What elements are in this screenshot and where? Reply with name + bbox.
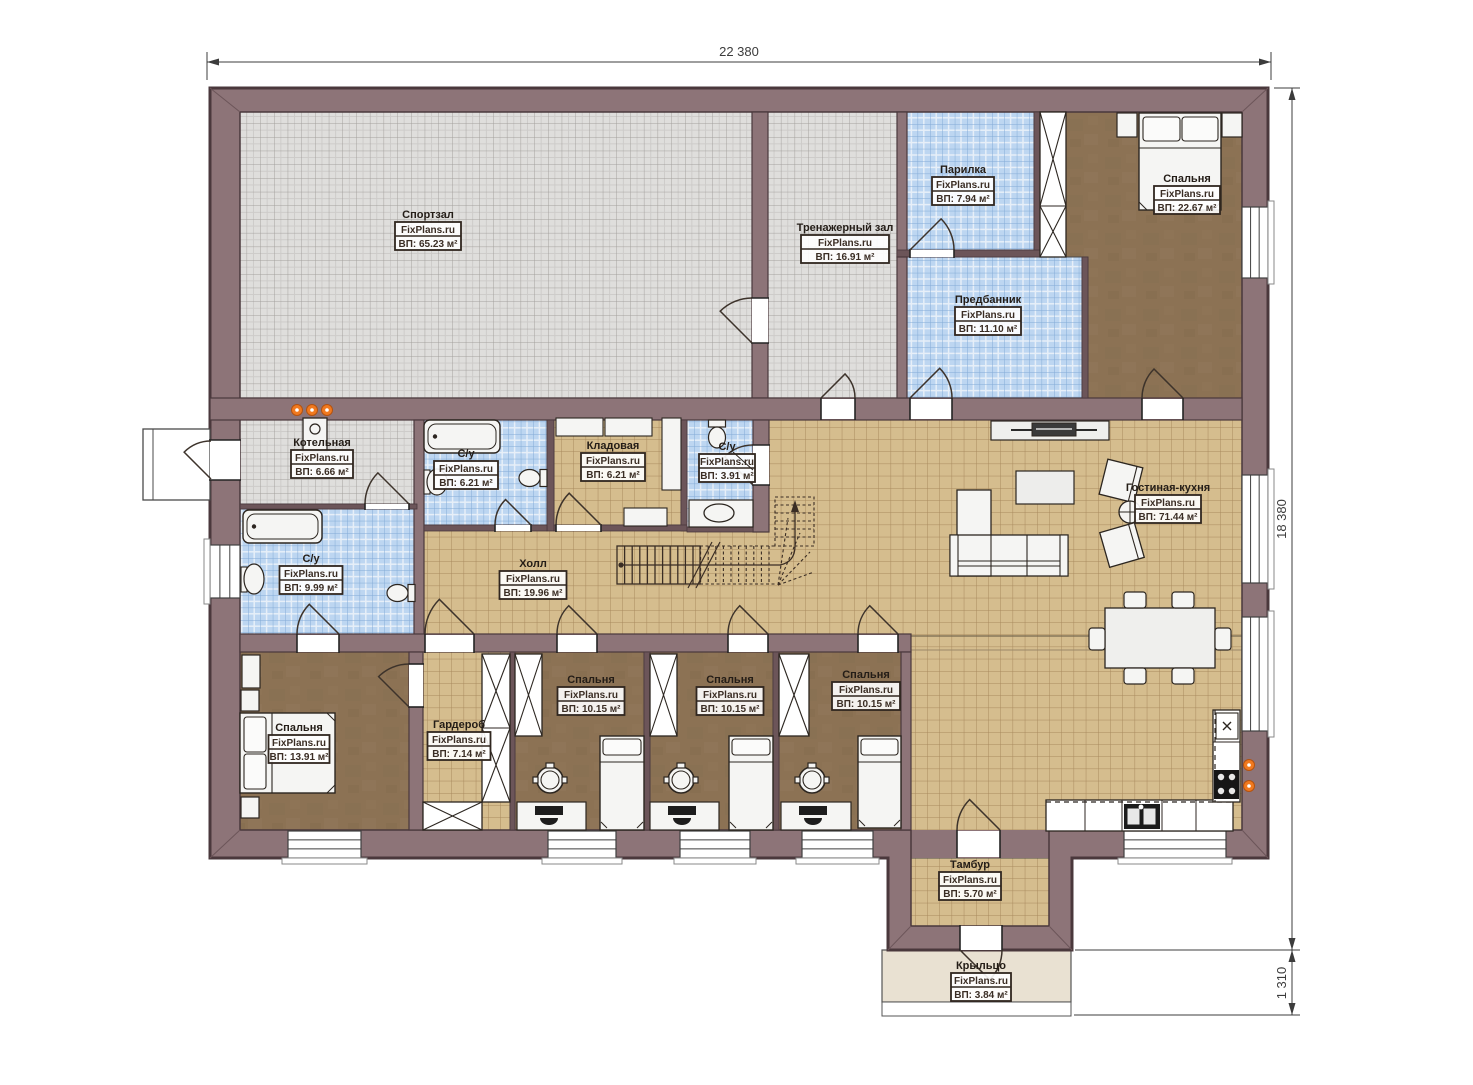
svg-text:1 310: 1 310 (1274, 967, 1289, 1000)
svg-text:FixPlans.ru: FixPlans.ru (961, 310, 1015, 321)
svg-text:Спальня: Спальня (842, 669, 890, 681)
svg-text:Крыльцо: Крыльцо (956, 960, 1006, 972)
svg-text:FixPlans.ru: FixPlans.ru (954, 976, 1008, 987)
svg-text:FixPlans.ru: FixPlans.ru (936, 180, 990, 191)
svg-text:Гардероб: Гардероб (433, 719, 485, 731)
svg-text:ВП: 3.84 м²: ВП: 3.84 м² (954, 990, 1008, 1001)
svg-text:ВП: 9.99 м²: ВП: 9.99 м² (284, 583, 338, 594)
svg-text:Спальня: Спальня (275, 722, 323, 734)
svg-text:FixPlans.ru: FixPlans.ru (506, 574, 560, 585)
svg-text:FixPlans.ru: FixPlans.ru (401, 225, 455, 236)
svg-text:Парилка: Парилка (940, 164, 987, 176)
svg-text:FixPlans.ru: FixPlans.ru (432, 735, 486, 746)
svg-text:FixPlans.ru: FixPlans.ru (272, 738, 326, 749)
svg-text:Гостиная-кухня: Гостиная-кухня (1126, 482, 1210, 494)
svg-text:Спальня: Спальня (567, 674, 615, 686)
svg-text:Предбанник: Предбанник (955, 294, 1022, 306)
svg-text:Котельная: Котельная (293, 437, 351, 449)
svg-text:ВП: 6.21 м²: ВП: 6.21 м² (439, 478, 493, 489)
svg-text:ВП: 7.94 м²: ВП: 7.94 м² (936, 194, 990, 205)
svg-text:ВП: 13.91 м²: ВП: 13.91 м² (269, 752, 329, 763)
svg-text:ВП: 7.14 м²: ВП: 7.14 м² (432, 749, 486, 760)
svg-text:FixPlans.ru: FixPlans.ru (700, 457, 754, 468)
svg-text:FixPlans.ru: FixPlans.ru (818, 238, 872, 249)
svg-text:FixPlans.ru: FixPlans.ru (439, 464, 493, 475)
svg-text:18 380: 18 380 (1274, 499, 1289, 539)
svg-text:ВП: 11.10 м²: ВП: 11.10 м² (959, 324, 1018, 335)
svg-text:Спортзал: Спортзал (402, 209, 454, 221)
svg-text:С/у: С/у (302, 553, 320, 565)
svg-text:ВП: 6.21 м²: ВП: 6.21 м² (586, 470, 640, 481)
svg-text:ВП: 19.96 м²: ВП: 19.96 м² (503, 588, 563, 599)
svg-text:ВП: 6.66 м²: ВП: 6.66 м² (295, 467, 349, 478)
svg-text:FixPlans.ru: FixPlans.ru (564, 690, 618, 701)
svg-text:ВП: 3.91 м²: ВП: 3.91 м² (700, 471, 754, 482)
svg-text:Спальня: Спальня (1163, 173, 1211, 185)
svg-text:FixPlans.ru: FixPlans.ru (586, 456, 640, 467)
svg-text:22 380: 22 380 (719, 44, 759, 59)
svg-text:ВП: 5.70 м²: ВП: 5.70 м² (943, 889, 997, 900)
svg-text:Тренажерный зал: Тренажерный зал (797, 222, 894, 234)
svg-text:ВП: 10.15 м²: ВП: 10.15 м² (836, 699, 896, 710)
svg-text:ВП: 16.91 м²: ВП: 16.91 м² (815, 252, 875, 263)
svg-text:С/у: С/у (718, 441, 736, 453)
svg-text:Тамбур: Тамбур (950, 859, 990, 871)
svg-text:FixPlans.ru: FixPlans.ru (295, 453, 349, 464)
svg-text:С/у: С/у (457, 448, 475, 460)
svg-text:Холл: Холл (519, 558, 547, 570)
svg-text:ВП: 10.15 м²: ВП: 10.15 м² (561, 704, 621, 715)
svg-text:ВП: 65.23 м²: ВП: 65.23 м² (398, 239, 458, 250)
svg-text:ВП: 22.67 м²: ВП: 22.67 м² (1157, 203, 1217, 214)
svg-text:Кладовая: Кладовая (587, 440, 640, 452)
svg-text:FixPlans.ru: FixPlans.ru (839, 685, 893, 696)
svg-text:Спальня: Спальня (706, 674, 754, 686)
svg-text:FixPlans.ru: FixPlans.ru (284, 569, 338, 580)
svg-text:FixPlans.ru: FixPlans.ru (703, 690, 757, 701)
svg-text:FixPlans.ru: FixPlans.ru (1141, 498, 1195, 509)
svg-text:ВП: 71.44 м²: ВП: 71.44 м² (1138, 512, 1198, 523)
svg-text:FixPlans.ru: FixPlans.ru (943, 875, 997, 886)
svg-text:ВП: 10.15 м²: ВП: 10.15 м² (700, 704, 760, 715)
svg-text:FixPlans.ru: FixPlans.ru (1160, 189, 1214, 200)
